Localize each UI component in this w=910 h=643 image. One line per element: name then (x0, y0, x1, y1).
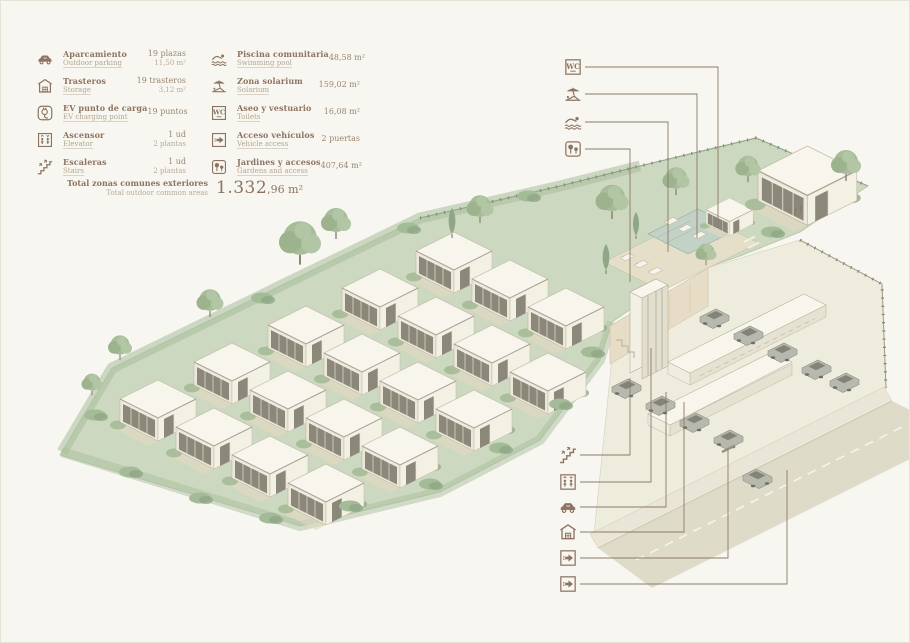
storage-icon (561, 525, 576, 539)
vehicle-access-icon (561, 577, 575, 591)
wc-icon (565, 60, 580, 74)
site-plan-illustration (0, 0, 910, 643)
tree (321, 208, 351, 239)
pool-icon (565, 117, 581, 129)
solarium-icon (566, 88, 581, 101)
callout-icons-bottom (560, 448, 576, 592)
vehicle-access-icon (561, 551, 575, 565)
garden-icon (566, 142, 580, 156)
callout-icons-top (565, 60, 581, 156)
car-icon (561, 503, 576, 512)
stairs-icon (560, 448, 576, 463)
elevator-icon (561, 475, 575, 489)
tree (279, 221, 321, 264)
